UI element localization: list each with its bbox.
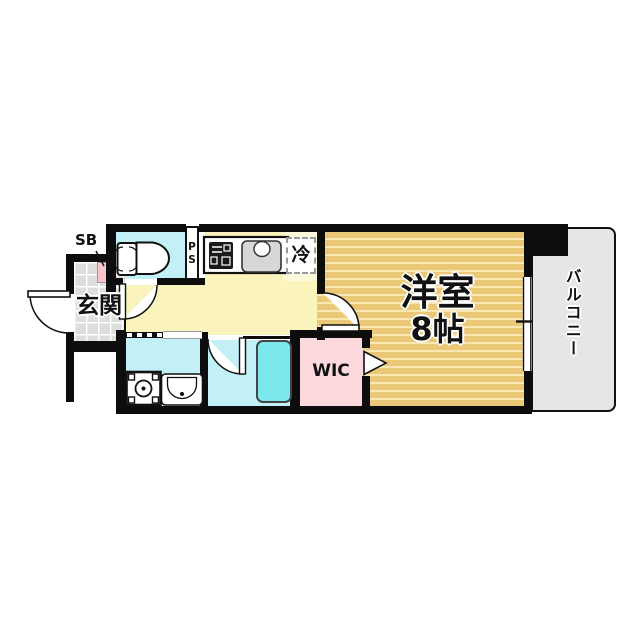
- balcony-label: バルコニー: [563, 268, 580, 388]
- wall-wic-right-lower: [362, 376, 370, 406]
- washroom-doorway: [163, 331, 202, 339]
- shoe-box-label: SB: [75, 233, 97, 249]
- wall-toilet-bottom-right: [157, 278, 205, 285]
- wic-label: WIC: [300, 363, 362, 381]
- wall-entrance-left-upper: [66, 254, 74, 294]
- pipe-space-label: PS: [186, 241, 197, 281]
- entrance-label: 玄関: [70, 294, 128, 318]
- main-room-size: 8帖: [360, 313, 515, 347]
- floor-plan: 洋室 8帖 玄関 SB PS 冷 WIC バルコニー: [0, 0, 640, 640]
- wall-toilet-bottom-left: [106, 278, 123, 285]
- wall-top-left: [106, 224, 186, 232]
- wall-wash-bath-divider: [200, 332, 208, 406]
- refrigerator-box: 冷: [286, 237, 316, 274]
- wall-bathroom-top-thin: [243, 336, 292, 339]
- wall-washroom-left: [116, 330, 126, 414]
- wall-top-right: [199, 224, 532, 232]
- main-room-name: 洋室: [360, 274, 515, 313]
- main-room-label: 洋室 8帖: [360, 274, 515, 346]
- bathroom-floor: [206, 340, 292, 406]
- entrance-door-swing-arc: [30, 294, 69, 333]
- refrigerator-label: 冷: [291, 246, 310, 266]
- wall-bath-right: [290, 330, 300, 406]
- accordion-partition: [127, 333, 162, 337]
- wall-bottom: [116, 406, 532, 414]
- hallway-floor: [116, 285, 217, 335]
- wall-balcony-chunk: [524, 224, 568, 256]
- wall-room-divider-upper: [317, 232, 325, 294]
- washroom-floor: [126, 338, 202, 406]
- entrance-door-leaf: [28, 291, 70, 297]
